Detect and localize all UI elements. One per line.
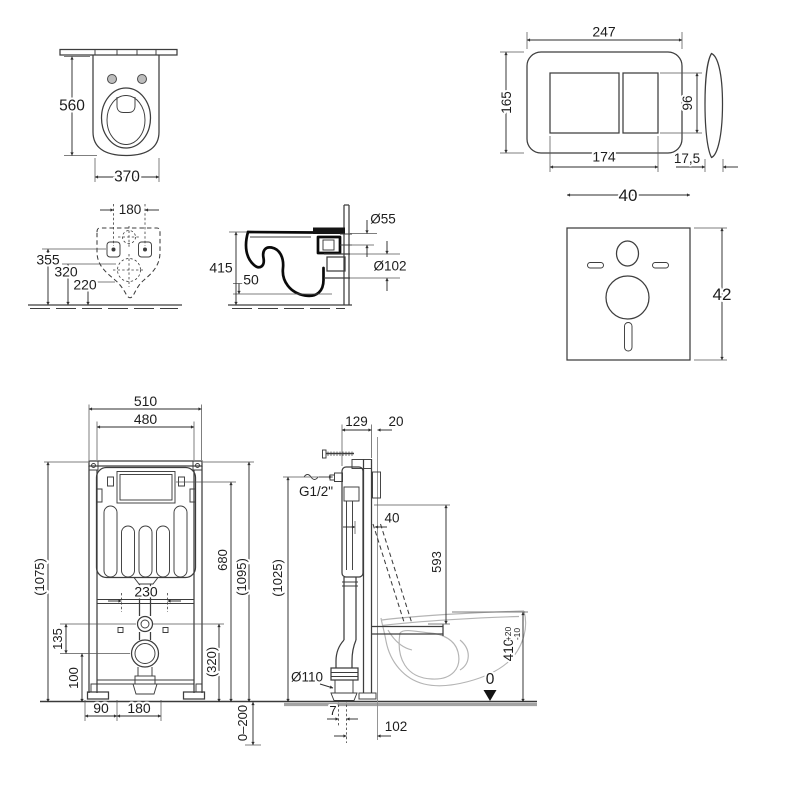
fill-valve (344, 487, 359, 501)
view-toilet-rear: 180 355 320 220 (28, 202, 182, 309)
wall-line (344, 205, 349, 305)
view-frame-front: 510 480 (1075) 680 (1095) 230 135 100 (3… (32, 393, 261, 745)
feet-plates (88, 692, 205, 699)
label-water-supply: G1/2" (299, 484, 333, 499)
corrugation-1 (104, 506, 117, 577)
dim-label-plate-height: 165 (499, 91, 514, 114)
dim-label-o102: Ø102 (373, 259, 406, 274)
inspection-window (117, 472, 175, 504)
dim-label-o55: Ø55 (370, 212, 396, 227)
dim-label-buttons-width: 174 (592, 149, 616, 165)
pad-slot-bottom (625, 323, 633, 352)
dim-label-1095: (1095) (234, 558, 249, 596)
button-small (623, 73, 658, 133)
dim-label-680: 680 (215, 549, 230, 571)
dim-label-1075: (1075) (32, 558, 47, 596)
drain-outlet-flare (331, 693, 357, 701)
drain-elbow-ribs (331, 673, 358, 677)
view-flush-plate: 247 165 96 174 17,5 (499, 24, 738, 173)
drain-flare (133, 684, 157, 694)
dim-label-plate-thickness: 17,5 (674, 151, 700, 166)
frame-top-bar (89, 461, 202, 466)
drain-connection-inner (135, 644, 155, 664)
technical-drawing: 560 370 247 165 96 174 17,5 (0, 0, 800, 800)
drain-elbow (336, 640, 356, 668)
pad-slot-left (588, 263, 604, 269)
pad-hole-center (606, 276, 649, 319)
corrugation-5 (174, 506, 187, 577)
flush-connection-inner (323, 240, 334, 250)
dim-label-480: 480 (134, 411, 158, 427)
dim-label-40: 40 (384, 511, 399, 526)
dim-label-180: 180 (127, 700, 151, 716)
cistern-clips (97, 477, 196, 502)
button-large (550, 73, 619, 133)
anchor-washer (323, 450, 327, 458)
dim-label-102: 102 (385, 719, 408, 734)
pad-outline (567, 228, 690, 360)
frame-rail (364, 459, 372, 693)
dim-label-410-group: 410 +20 -10 (501, 627, 522, 662)
view-toilet-top: 560 370 (59, 50, 177, 186)
seat-inner (107, 96, 145, 145)
drain-elbow-collar (331, 668, 358, 680)
flush-pipe-stub (340, 234, 352, 245)
dim-label-415: 415 (209, 260, 233, 276)
bowl-rear-outline (97, 228, 160, 298)
flush-connection-box (318, 237, 340, 253)
technical-drawing-page: 560 370 247 165 96 174 17,5 (0, 0, 800, 800)
mount-bar (313, 228, 345, 235)
label-floor-level: 0 (486, 671, 495, 688)
dim-label-feet-range: 0–200 (235, 705, 250, 741)
fixing-bolt-left (112, 248, 116, 252)
supply-connection (138, 617, 153, 632)
view-sound-pad: 40 42 (567, 186, 731, 360)
cistern (97, 468, 196, 578)
drain-center-lines (339, 700, 347, 743)
dim-label-20: 20 (388, 414, 403, 429)
view-frame-side: 129 20 G1/2" 40 593 (1025) Ø110 410 +20 … (270, 414, 528, 743)
dim-label-1025: (1025) (270, 559, 285, 597)
dim-label-plate-width: 247 (592, 24, 616, 40)
feet-stems (91, 684, 202, 692)
fixing-hole-right (138, 75, 147, 84)
dim-label-90: 90 (93, 700, 109, 716)
seat-outer (102, 88, 151, 148)
drain-label-arrow (320, 684, 333, 688)
ghost-trap (399, 631, 459, 680)
view-toilet-side: 415 50 Ø55 Ø102 (209, 205, 406, 309)
floor (40, 702, 537, 705)
dim-label-593: 593 (429, 551, 444, 573)
dim-label-220: 220 (73, 277, 97, 293)
dim-label-bowl-width: 370 (114, 169, 140, 186)
floor-reference-marker (484, 690, 497, 701)
dim-label-129: 129 (345, 414, 368, 429)
corrugation-3 (139, 526, 152, 577)
dim-label-o110: Ø110 (291, 670, 323, 685)
pad-slot-right (653, 263, 669, 269)
dim-label-320: (320) (204, 647, 219, 677)
dim-label-bowl-depth: 560 (59, 98, 85, 115)
supply-connection-inner (141, 620, 149, 628)
dim-label-7: 7 (329, 703, 336, 718)
flush-opening (117, 97, 135, 113)
plate-side-profile (705, 54, 723, 158)
fixing-bolt-right (143, 248, 147, 252)
drain-connection (327, 257, 345, 271)
flush-pipe-hidden (373, 524, 412, 622)
dim-label-holes-spacing: 180 (119, 202, 142, 217)
dim-label-pad-width: 40 (619, 186, 638, 205)
dim-label-135: 135 (50, 628, 65, 650)
inspection-window-inner (120, 475, 172, 501)
dim-label-pad-height: 42 (713, 285, 732, 304)
frame-foot (359, 693, 376, 699)
dim-label-410-tol-minus: -10 (512, 628, 522, 641)
drain-neck (138, 667, 152, 676)
bowl-rim (248, 232, 313, 233)
dim-label-buttons-height: 96 (680, 95, 695, 110)
dim-label-50: 50 (243, 272, 259, 288)
dim-label-100: 100 (66, 667, 81, 689)
wall-line (60, 50, 177, 56)
drain-outlet (335, 680, 353, 693)
flush-inlet-crosshair (118, 226, 140, 248)
flush-valve-column (347, 501, 353, 570)
cross-struts (97, 600, 194, 685)
dim-label-230: 230 (134, 584, 158, 600)
fixing-hole-left (108, 75, 117, 84)
corrugation-4 (157, 526, 170, 577)
corrugation-2 (122, 526, 135, 577)
pad-hole-top (617, 241, 639, 266)
wall-ticks (95, 50, 156, 56)
dim-label-510: 510 (134, 393, 158, 409)
bowl-outline (93, 55, 159, 156)
drain-connection (132, 640, 159, 667)
bend-housing (373, 472, 381, 498)
extension-lines (283, 425, 528, 625)
